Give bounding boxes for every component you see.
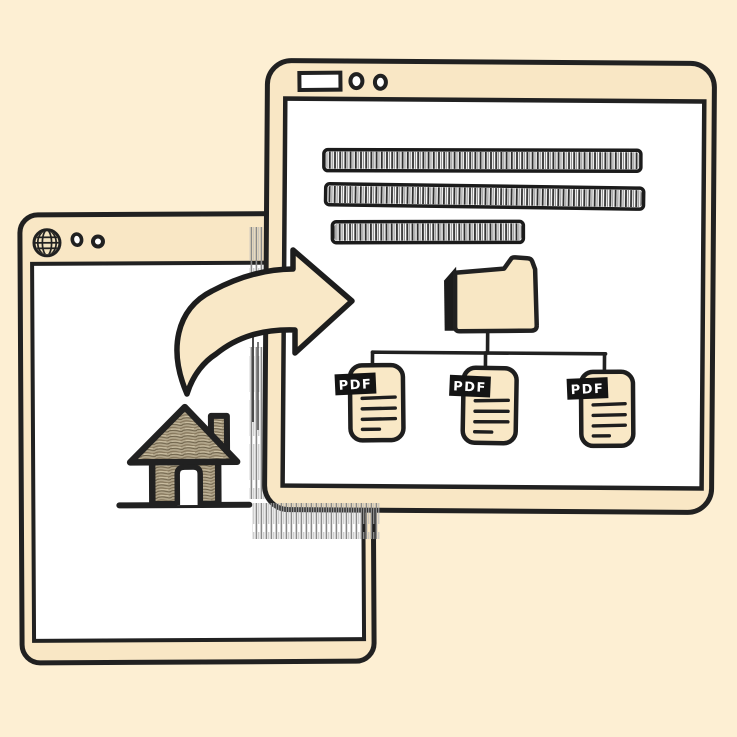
pdf-badge-label: PDF [338,377,372,394]
window-control-circle-icon [71,233,82,246]
house-door [177,467,200,505]
globe-icon [34,230,60,256]
window-control-circle-icon [93,236,103,246]
pdf-badge: PDF [335,373,377,396]
address-bar [299,73,340,90]
pdf-badge-label: PDF [570,382,604,398]
illustration-canvas: PDF PDF [0,0,737,737]
window-shadow-hatch-bottom [252,503,380,539]
window-control-circle-icon [350,74,362,88]
pdf-badge: PDF [449,375,491,398]
pdf-badge: PDF [567,377,609,400]
pdf-badge-label: PDF [453,379,487,395]
window-control-circle-icon [375,76,386,89]
